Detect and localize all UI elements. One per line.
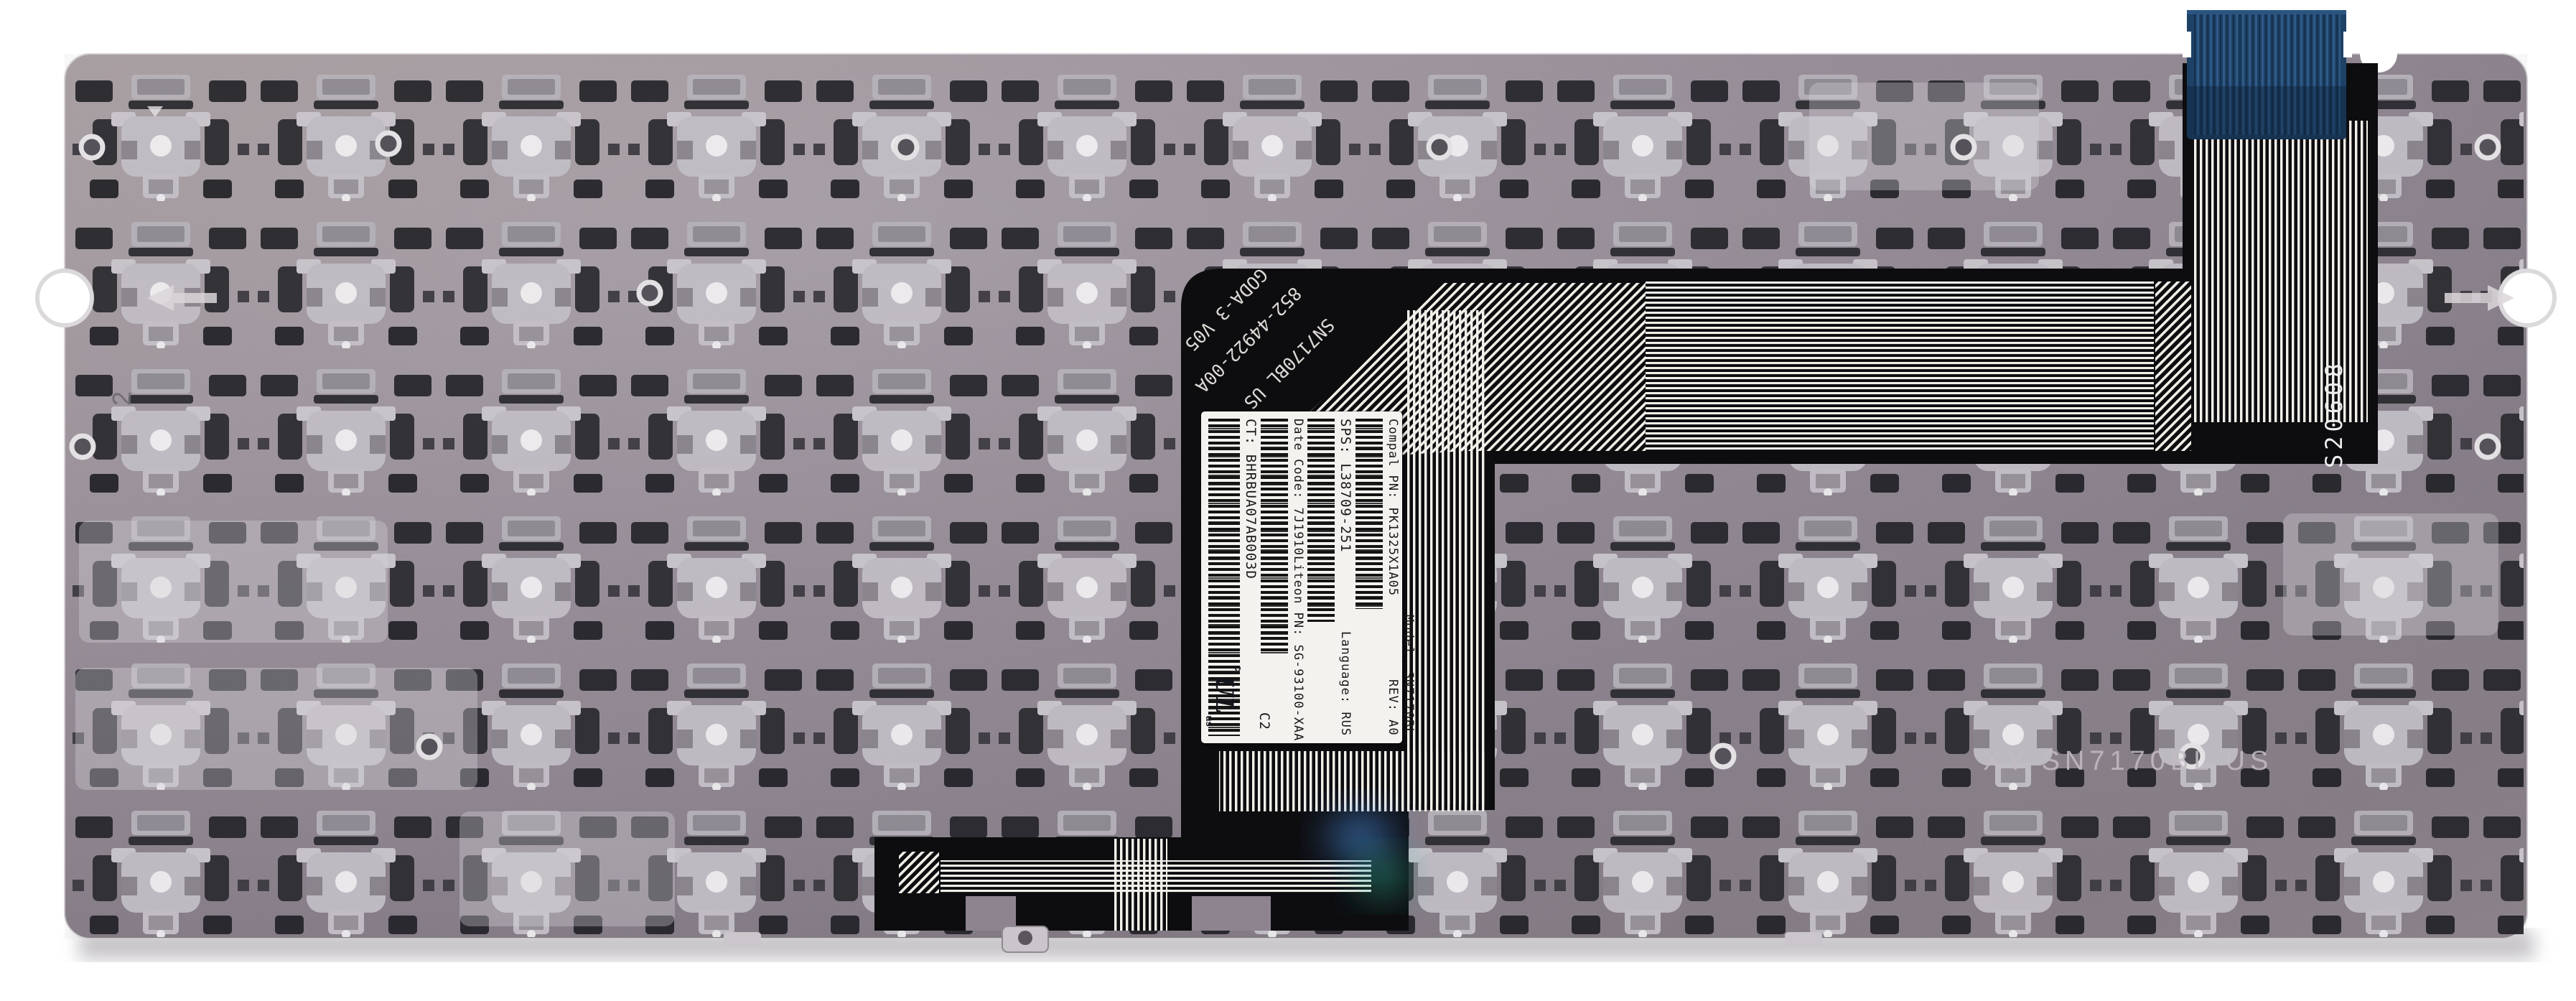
part-number-label: CT: BHRBUA07AB003D Date Code: 7J1910 Lit… (1201, 411, 1402, 743)
text-column-sps-language: SPS: L38709-251 Language: RUS (1338, 419, 1352, 736)
fpc-connector (2183, 10, 2352, 139)
plate-stamp-text: XY SN7170BL US (1983, 746, 2273, 776)
barcode-compal-pn (1355, 419, 1383, 609)
plate-edge-mark: 2 (107, 391, 136, 406)
connector-tab-right (2343, 32, 2352, 57)
label-model: Model: SN7170BL (1402, 615, 1414, 736)
label-ct: CT: BHRBUA07AB003D (1243, 419, 1257, 579)
edge-notch-left (37, 271, 92, 325)
barcode-column-compal (1355, 419, 1383, 736)
connector-tab-left (2183, 32, 2191, 57)
label-date-code: Date Code: 7J1910 (1292, 419, 1304, 556)
barcode-column-sps (1307, 419, 1335, 736)
ul-certification-icon: c UL us (1204, 674, 1244, 714)
riser-transition-traces (2155, 281, 2191, 451)
keyboard-backplate-photo: XY SN7170BL US 2 GODA-3 V05 852-44922-00… (0, 0, 2576, 1001)
label-liteon-pn: Liteon PN: SG-93100-XAA (1292, 556, 1304, 741)
text-column-ct: CT: BHRBUA07AB003D (1243, 419, 1257, 736)
barcode-column-date (1261, 419, 1288, 736)
flex-serial-text: S20608 (2320, 359, 2348, 468)
label-cert-mark: C2 (1257, 712, 1271, 730)
ul-c-mark: c (1233, 665, 1243, 671)
green-reflection (1343, 844, 1422, 908)
band-traces (1646, 281, 2154, 451)
label-language: Language: RUS (1339, 631, 1351, 736)
ul-us-mark: us (1205, 716, 1214, 727)
text-column-model: Model: SN7170BL (1402, 419, 1414, 736)
barcode-date-code (1261, 419, 1288, 653)
label-rev: REV: A0 (1386, 679, 1399, 736)
bottom-dense-traces (1111, 839, 1167, 931)
bottom-corner-traces (899, 852, 939, 893)
label-sps: SPS: L38709-251 (1338, 419, 1352, 553)
barcode-sps (1307, 419, 1335, 622)
trunk-traces (1407, 310, 1488, 804)
text-column-date-liteon: Date Code: 7J1910 Liteon PN: SG-93100-XA… (1292, 419, 1304, 736)
ul-letters: UL (1210, 675, 1238, 714)
label-compal-pn: Compal PN: PK1325X1A05 (1386, 419, 1399, 596)
text-column-compal-rev: Compal PN: PK1325X1A05 REV: A0 (1386, 419, 1399, 736)
